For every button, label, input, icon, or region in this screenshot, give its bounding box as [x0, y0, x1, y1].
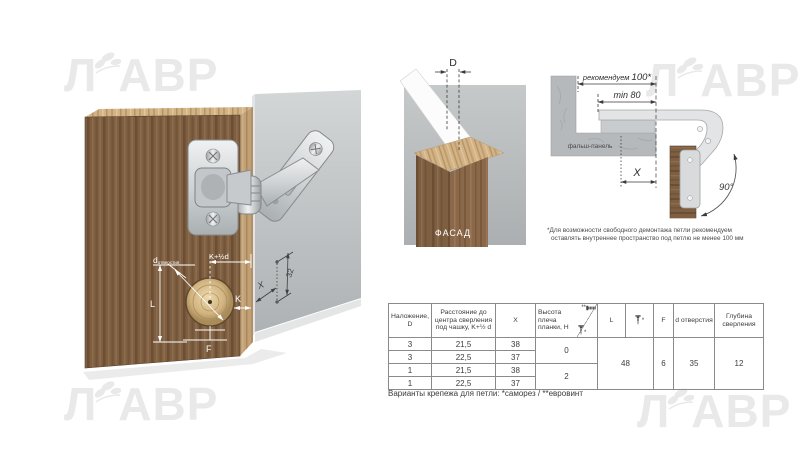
- facade-caption: ФАСАД: [435, 228, 471, 238]
- header-distance: Расстояние до центра сверления под чашку…: [432, 304, 496, 338]
- dim-label-k-half-d: K+½d: [209, 252, 229, 261]
- cell-distance: 21,5: [432, 338, 496, 351]
- cell-h-group: 0: [536, 338, 598, 364]
- dim-label-D: D: [449, 57, 457, 69]
- screw-type-split: ** *: [577, 304, 597, 337]
- cup-hole: [186, 278, 234, 326]
- header-l: L: [598, 304, 626, 338]
- cell-distance: 22,5: [432, 351, 496, 364]
- table-footnote: Варианты крепежа для петли: *саморез / *…: [388, 389, 583, 398]
- min-label: min 80: [613, 90, 640, 100]
- cell-overlay: 3: [389, 351, 432, 364]
- cell-x: 37: [496, 377, 536, 390]
- x-label: X: [632, 167, 641, 179]
- cell-distance: 21,5: [432, 364, 496, 377]
- watermark-brand: ЛАВР: [637, 388, 791, 434]
- clearance-note-line1: *Для возможности свободного демонтажа пе…: [547, 226, 732, 234]
- cell-hole-d: 35: [674, 338, 715, 390]
- facade-overlay-diagram: D ФАСАД: [400, 55, 530, 255]
- euroscrew-icon: [586, 305, 597, 311]
- false-panel-label: фальш-панель: [568, 143, 613, 150]
- header-overlay: Наложение, D: [389, 304, 432, 338]
- cell-overlay: 1: [389, 364, 432, 377]
- dim-label-l: L: [150, 299, 155, 309]
- angle-label: 90°: [719, 182, 734, 193]
- clearance-note-line2: оставлять внутреннее пространство под пе…: [551, 235, 744, 242]
- dimension-table: Наложение, D Расстояние до центра сверле…: [388, 303, 764, 390]
- recommend-label: рекомендуем 100*: [582, 72, 651, 83]
- header-arm-height: Высота плеча планки, H ** *: [536, 304, 598, 338]
- cell-x: 38: [496, 338, 536, 351]
- cell-h-group: 2: [536, 364, 598, 390]
- cell-distance: 22,5: [432, 377, 496, 390]
- hinge-photo-illustration: dотверстия K+½d K L F X 32: [55, 90, 365, 395]
- cell-depth: 12: [715, 338, 764, 390]
- table-row: 3 21,5 38 0 48 6 35 12: [389, 338, 764, 351]
- header-hole-d: d отверстия: [674, 304, 715, 338]
- cell-overlay: 1: [389, 377, 432, 390]
- cell-x: 38: [496, 364, 536, 377]
- door: [670, 146, 700, 218]
- leaf-icon: [94, 36, 121, 82]
- cell-f: 6: [654, 338, 674, 390]
- header-f: F: [654, 304, 674, 338]
- selftap-screw-icon: [635, 315, 641, 326]
- dim-label-k: K: [235, 294, 241, 304]
- cell-l: 48: [598, 338, 654, 390]
- header-x: X: [496, 304, 536, 338]
- header-screw: *: [626, 304, 654, 338]
- mounting-clearance-diagram: фальш-панель 90° рекомендуем 100* min 80…: [533, 58, 793, 253]
- cell-x: 37: [496, 351, 536, 364]
- dim-label-f: F: [206, 344, 212, 354]
- cell-overlay: 3: [389, 338, 432, 351]
- header-depth: Глубина сверления: [715, 304, 764, 338]
